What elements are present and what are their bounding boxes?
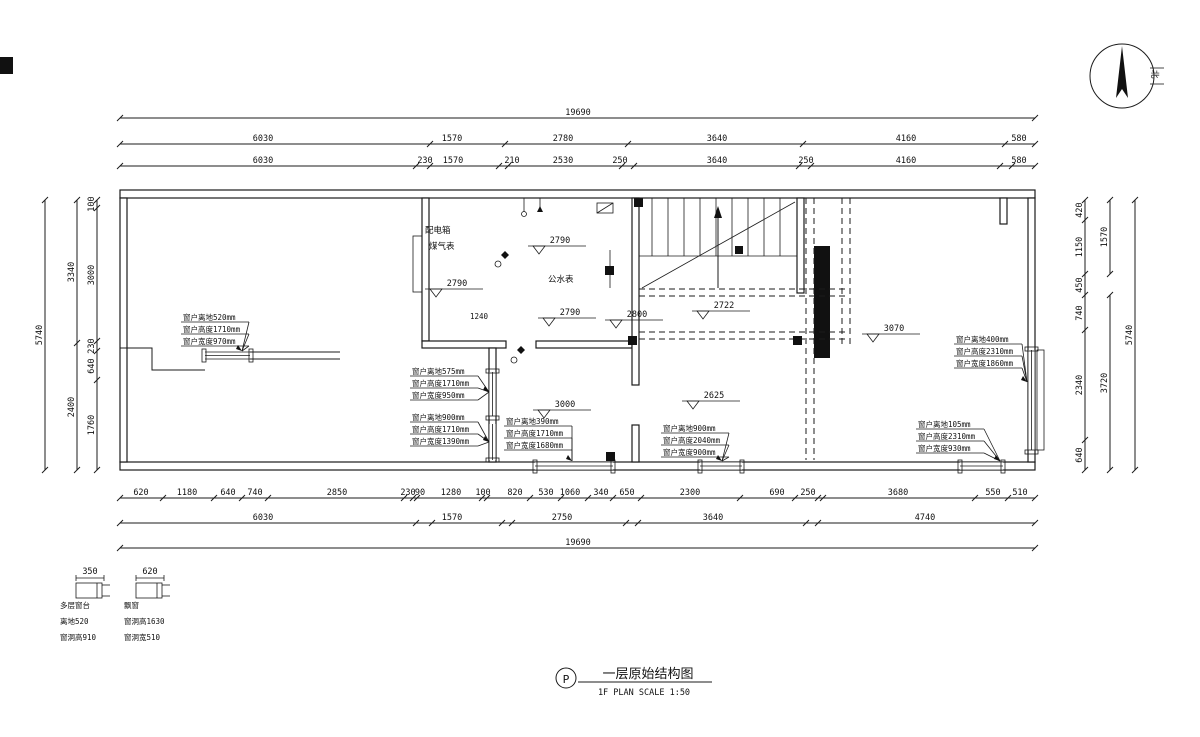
legend-a-dim: 350 [82,567,97,577]
label-distribution-box: 配电箱 [425,225,451,236]
dim-label: 690 [769,488,784,498]
dim-label: 230 [400,488,415,498]
structural-pier [814,246,830,358]
dim-label: 2850 [327,488,347,498]
dim-label: 窗户离地105mm [918,419,971,429]
dim-label: 3640 [703,513,723,523]
dim-label: 2800 [627,310,647,320]
label-gas-meter: 煤气表 [429,241,455,252]
pipe-icon [537,206,543,212]
compass-needle-icon [1116,46,1128,98]
pipe-icon [522,212,527,217]
dim-label: 650 [619,488,634,498]
dim-label: 2300 [680,488,700,498]
dim-label: 2780 [553,134,573,144]
legend-b-line2: 窗洞高1630 [124,616,165,626]
dim-label: 4160 [896,134,916,144]
bay-sill [1037,350,1044,450]
dim-label: 4740 [915,513,935,523]
dim-label: 窗户离地400mm [956,334,1009,344]
dim-label: 2400 [67,397,77,417]
dim-label: 窗户高度1710mm [506,428,564,438]
dim-label: 2530 [553,156,573,166]
dim-label: 5740 [35,325,45,345]
legend-a-line2: 离地520 [60,616,89,626]
dim-label: 450 [1075,277,1085,292]
dim-label: 窗户离地575mm [412,366,465,376]
dim-label: 210 [504,156,519,166]
drawing-title: 一层原始结构图 [602,667,693,682]
dim-label: 窗户宽度950mm [412,390,465,400]
legend-b-line3: 窗洞宽510 [124,632,161,642]
floor-plan-drawing: 配电箱 煤气表 公水表 1240 19690603015702780364041… [0,0,1200,737]
dim-label: 窗户高度2040mm [663,435,721,445]
dim-label: 3680 [888,488,908,498]
column [793,336,802,345]
dim-label: 3720 [1100,373,1110,393]
dim-label: 窗户高度2310mm [918,431,976,441]
dim-label: 19690 [565,108,591,118]
column [628,336,637,345]
dim-label: 740 [247,488,262,498]
dim-label: 3000 [555,400,575,410]
title-block: P 一层原始结构图 1F PLAN SCALE 1:50 [556,667,712,698]
dim-label: 1060 [560,488,580,498]
dim-label: 820 [507,488,522,498]
north-label: 北 [1149,70,1159,79]
plan-marker: P [563,673,570,686]
staircase [639,198,797,288]
dim-label: 100 [475,488,490,498]
legend-b-line1: 飘窗 [124,600,139,610]
north-arrow: 北 [1090,44,1164,108]
dim-label: 窗户高度1710mm [183,324,241,334]
dim-label: 窗户宽度1390mm [412,436,470,446]
dim-label: 6030 [253,156,273,166]
dim-label: 6030 [253,513,273,523]
drawing-scale: 1F PLAN SCALE 1:50 [598,688,690,698]
dim-label: 1150 [1075,237,1085,257]
label-door-height: 1240 [470,312,489,321]
dim-label: 3640 [707,156,727,166]
dim-label: 230 [87,338,97,353]
dim-label: 420 [1075,202,1085,217]
dim-label: 3070 [884,324,904,334]
dim-label: 250 [800,488,815,498]
dim-label: 3640 [707,134,727,144]
dim-label: 2750 [552,513,572,523]
dim-label: 窗户高度1710mm [412,424,470,434]
dim-label: 1280 [441,488,461,498]
legend-a-line3: 窗洞高910 [60,632,97,642]
dim-label: 窗户离地900mm [663,423,716,433]
dim-label: 2340 [1075,375,1085,395]
dim-label: 1760 [87,415,97,435]
dim-label: 1570 [442,513,462,523]
dim-label: 90 [415,488,425,498]
dim-label: 3000 [87,265,97,285]
dim-label: 250 [612,156,627,166]
dim-label: 窗户离地900mm [412,412,465,422]
dim-label: 窗户宽度1860mm [956,358,1014,368]
legend-b-symbol [136,583,162,598]
dim-label: 740 [1075,305,1085,320]
dim-label: 550 [985,488,1000,498]
dim-label: 窗户高度1710mm [412,378,470,388]
valve-icon [517,346,525,354]
legend-b-dim: 620 [142,567,157,577]
dim-label: 1570 [443,156,463,166]
sheet-edge-mark [0,57,13,74]
dim-label: 1570 [442,134,462,144]
dim-label: 580 [1011,156,1026,166]
generated-dimensions: 1969060301570278036404160580603023015702… [35,108,1138,551]
dim-label: 2722 [714,301,734,311]
dim-label: 19690 [565,538,591,548]
dim-label: 530 [538,488,553,498]
dim-label: 窗户离地390mm [506,416,559,426]
column [606,452,615,461]
dim-label: 窗户高度2310mm [956,346,1014,356]
legend-a-symbol [76,583,102,598]
dim-label: 620 [133,488,148,498]
dim-label: 窗户宽度1680mm [506,440,564,450]
dim-label: 2790 [550,236,570,246]
label-water-meter: 公水表 [548,274,574,285]
windows [202,347,1044,473]
dim-label: 6030 [253,134,273,144]
dim-label: 580 [1011,134,1026,144]
dim-label: 3340 [67,262,77,282]
dim-label: 640 [1075,447,1085,462]
dim-label: 窗户离地520mm [183,312,236,322]
dim-label: 100 [87,196,97,211]
dim-label: 2790 [560,308,580,318]
dim-label: 250 [798,156,813,166]
column [605,266,614,275]
dim-label: 5740 [1125,325,1135,345]
floor-plan-canvas: 配电箱 煤气表 公水表 1240 19690603015702780364041… [0,0,1200,737]
dim-label: 510 [1012,488,1027,498]
legend-a-line1: 多层窗台 [60,600,90,610]
dim-label: 1570 [1100,227,1110,247]
dim-label: 640 [87,358,97,373]
dim-label: 640 [220,488,235,498]
meter-icon [495,261,501,267]
valve-icon [501,251,509,259]
dim-label: 窗户宽度970mm [183,336,236,346]
meter-icon [511,357,517,363]
dim-label: 4160 [896,156,916,166]
dim-label: 230 [417,156,432,166]
dim-label: 1180 [177,488,197,498]
dim-label: 2790 [447,279,467,289]
dim-label: 窗户宽度900mm [663,447,716,457]
dim-label: 2625 [704,391,724,401]
column [634,198,643,207]
dim-label: 340 [593,488,608,498]
legend-window-details: 350 多层窗台 离地520 窗洞高910 620 飘窗 窗洞高1630 窗洞宽… [60,567,170,642]
dim-label: 窗户宽度930mm [918,443,971,453]
